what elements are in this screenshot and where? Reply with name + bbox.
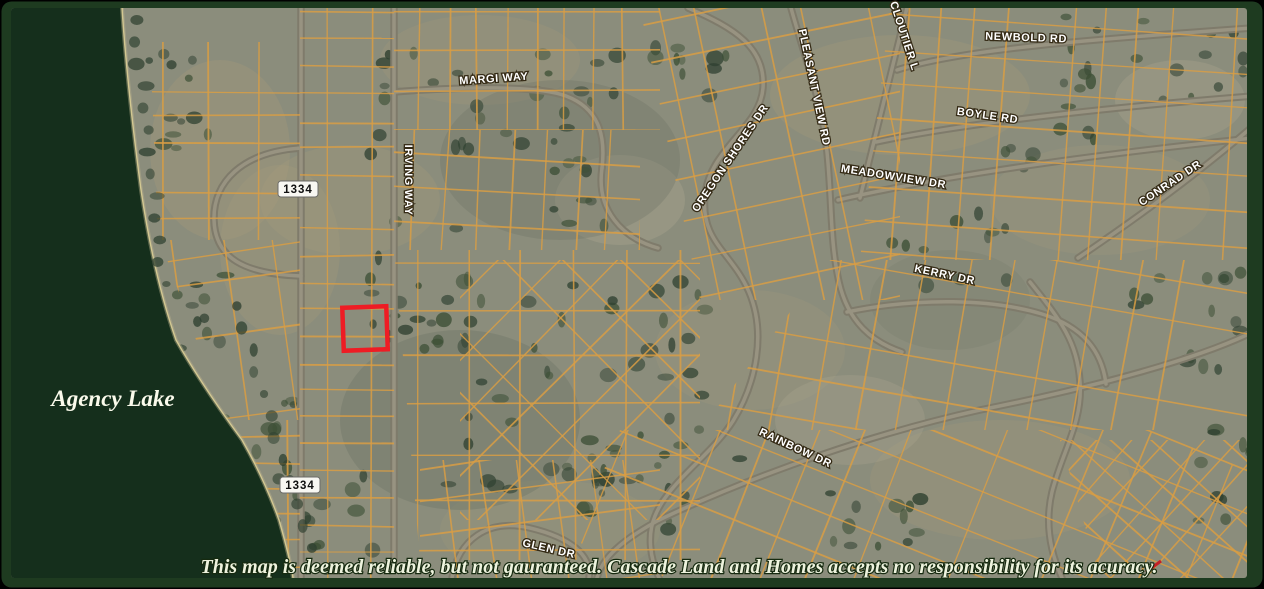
parcel-map: 1334 1334 MARGI WAY IRVING WAY OREGON SH… [0,0,1264,589]
lake-label: Agency Lake [49,386,174,411]
route-badge-1334-north: 1334 [278,181,318,197]
map-window: 1334 1334 MARGI WAY IRVING WAY OREGON SH… [0,0,1264,589]
route-badge-label: 1334 [283,184,313,196]
disclaimer-text: This map is deemed reliable, but not gau… [200,556,1157,578]
route-badge-1334-south: 1334 [280,477,320,493]
map-texture [0,0,1264,589]
road-label-irving-way: IRVING WAY [402,145,414,216]
route-badge-label: 1334 [285,480,315,492]
